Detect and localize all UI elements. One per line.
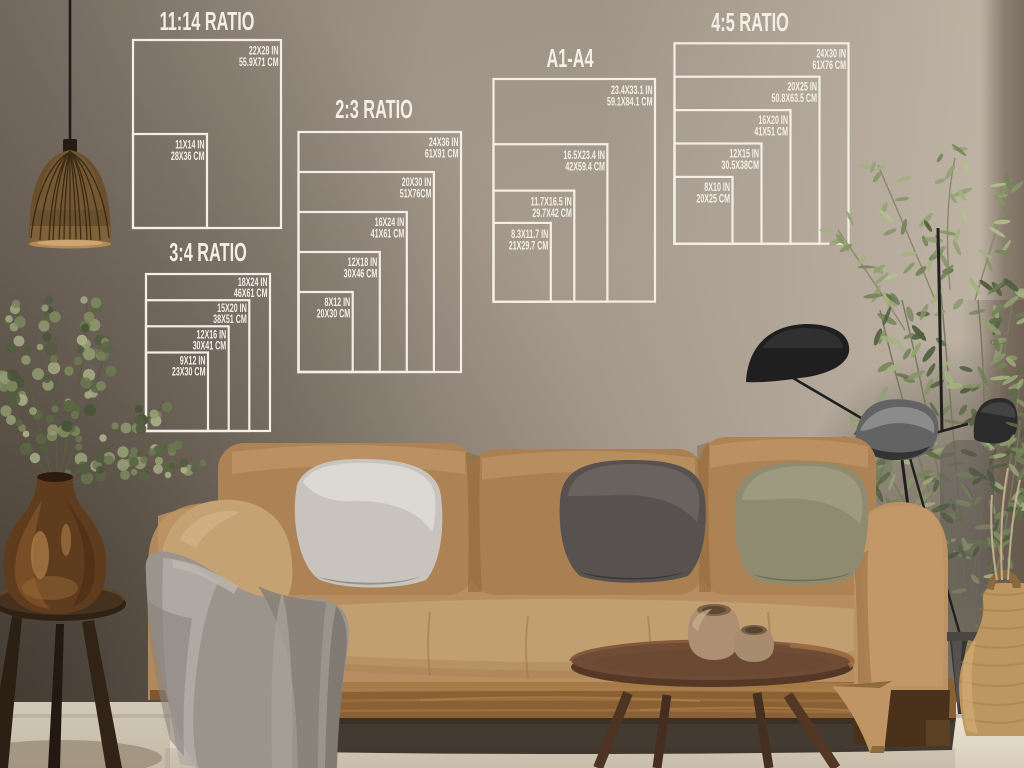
svg-text:38X51 CM: 38X51 CM (213, 314, 247, 327)
svg-text:46X61 CM: 46X61 CM (234, 287, 268, 300)
svg-text:51X76CM: 51X76CM (400, 188, 432, 201)
svg-text:29.7X42 CM: 29.7X42 CM (532, 207, 572, 220)
svg-text:28X36 CM: 28X36 CM (171, 150, 205, 163)
svg-text:61X76 CM: 61X76 CM (812, 59, 846, 72)
svg-text:30X46 CM: 30X46 CM (344, 268, 378, 281)
svg-text:A1-A4: A1-A4 (546, 44, 593, 73)
svg-text:50.8X63.5 CM: 50.8X63.5 CM (772, 93, 818, 106)
svg-text:41X61 CM: 41X61 CM (371, 228, 405, 241)
svg-text:4:5 RATIO: 4:5 RATIO (711, 8, 789, 37)
svg-text:11:14 RATIO: 11:14 RATIO (160, 7, 255, 36)
svg-text:21X29.7 CM: 21X29.7 CM (509, 240, 549, 253)
svg-text:41X51 CM: 41X51 CM (754, 126, 788, 139)
svg-text:30.5X38CM: 30.5X38CM (721, 159, 759, 172)
svg-text:55.9X71 CM: 55.9X71 CM (239, 56, 279, 69)
svg-text:42X59.4 CM: 42X59.4 CM (565, 161, 605, 174)
svg-text:3:4 RATIO: 3:4 RATIO (169, 238, 247, 267)
svg-text:23X30 CM: 23X30 CM (172, 366, 206, 379)
svg-text:20X25 CM: 20X25 CM (696, 193, 730, 206)
svg-text:20X30 CM: 20X30 CM (317, 308, 351, 321)
svg-text:61X91 CM: 61X91 CM (425, 148, 459, 161)
svg-text:30X41 CM: 30X41 CM (193, 340, 227, 353)
svg-text:59.1X84.1 CM: 59.1X84.1 CM (607, 96, 653, 109)
svg-text:2:3 RATIO: 2:3 RATIO (335, 95, 413, 124)
